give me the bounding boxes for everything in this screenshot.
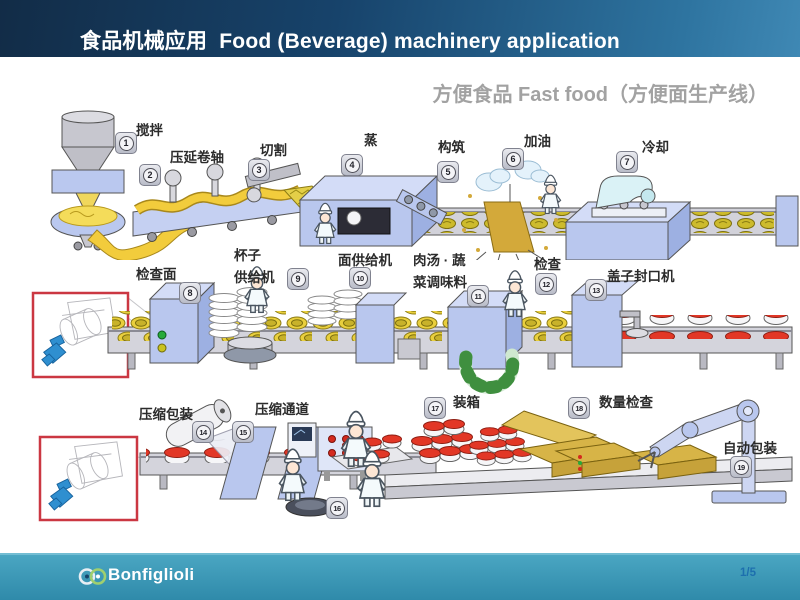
station-label-10: 面供给机 [338,249,392,269]
station-label-3: 切割 [260,139,287,159]
station-badge-10: 10 [349,267,371,289]
station-badge-13: 13 [585,279,607,301]
station-label-4: 蒸 [364,129,378,149]
station-label-12: 检查 [534,253,561,273]
station-number: 19 [734,460,749,475]
station-label-14: 压缩包装 [139,403,193,423]
header-bar: 食品机械应用 Food (Beverage) machinery applica… [0,0,800,57]
station-number: 8 [183,286,198,301]
station-number: 7 [620,155,635,170]
station-number: 14 [196,425,211,440]
station-label-11: 肉汤 · 蔬 菜调味料 [413,250,467,294]
station-number: 5 [441,165,456,180]
station-badge-6: 6 [502,148,524,170]
mixer-machine [51,111,125,250]
station-badge-7: 7 [616,151,638,173]
station-label-15: 压缩通道 [255,398,309,418]
station-number: 15 [236,425,251,440]
lid-sealing-machine [572,281,648,367]
station-badge-14: 14 [192,421,214,443]
station-number: 2 [143,168,158,183]
station-badge-12: 12 [535,273,557,295]
station-number: 11 [471,289,486,304]
production-row-3 [0,395,800,555]
station-number: 6 [506,152,521,167]
station-badge-2: 2 [139,164,161,186]
cooling-machine [566,176,690,260]
station-badge-1: 1 [115,132,137,154]
station-badge-5: 5 [437,161,459,183]
station-badge-9: 9 [287,268,309,290]
page-title: 食品机械应用 Food (Beverage) machinery applica… [80,25,620,55]
station-number: 12 [539,277,554,292]
station-number: 17 [428,401,443,416]
station-label-17: 装箱 [453,391,480,411]
station-label-7: 冷却 [642,136,669,156]
station-label-19: 自动包装 [723,437,777,457]
station-number: 18 [572,401,587,416]
station-label-line: 供给机 [234,267,275,289]
station-label-line: 杯子 [234,245,275,267]
station-label-2: 压延卷轴 [170,146,224,166]
station-number: 3 [252,163,267,178]
station-badge-8: 8 [179,282,201,304]
station-badge-16: 16 [326,497,348,519]
station-badge-3: 3 [248,159,270,181]
station-label-9: 杯子 供给机 [234,245,275,289]
station-badge-11: 11 [467,285,489,307]
station-label-8: 检查面 [136,263,177,283]
station-number: 16 [330,501,345,516]
station-label-line: 菜调味料 [413,272,467,294]
brand-name: Bonfiglioli [108,565,194,585]
production-row-1 [0,100,800,260]
station-label-13: 盖子封口机 [607,265,675,285]
station-badge-4: 4 [341,154,363,176]
cup-cluster [412,420,481,464]
station-label-1: 搅拌 [136,119,163,139]
station-badge-18: 18 [568,397,590,419]
station-number: 9 [291,272,306,287]
station-number: 1 [119,136,134,151]
station-number: 4 [345,158,360,173]
station-badge-15: 15 [232,421,254,443]
page-number: 1/5 [740,567,756,579]
production-row-2 [0,255,800,400]
station-label-5: 构筑 [438,136,465,156]
station-badge-19: 19 [730,456,752,478]
station-label-18: 数量检查 [599,391,653,411]
station-number: 13 [589,283,604,298]
gearmotor-inset [40,437,137,520]
slide: 食品机械应用 Food (Beverage) machinery applica… [0,0,800,600]
station-number: 10 [353,271,368,286]
cup-supply-pedestal [224,337,276,363]
station-label-line: 肉汤 · 蔬 [413,250,467,272]
bonfiglioli-logo-icon [78,566,108,587]
station-label-6: 加油 [524,130,551,150]
station-badge-17: 17 [424,397,446,419]
